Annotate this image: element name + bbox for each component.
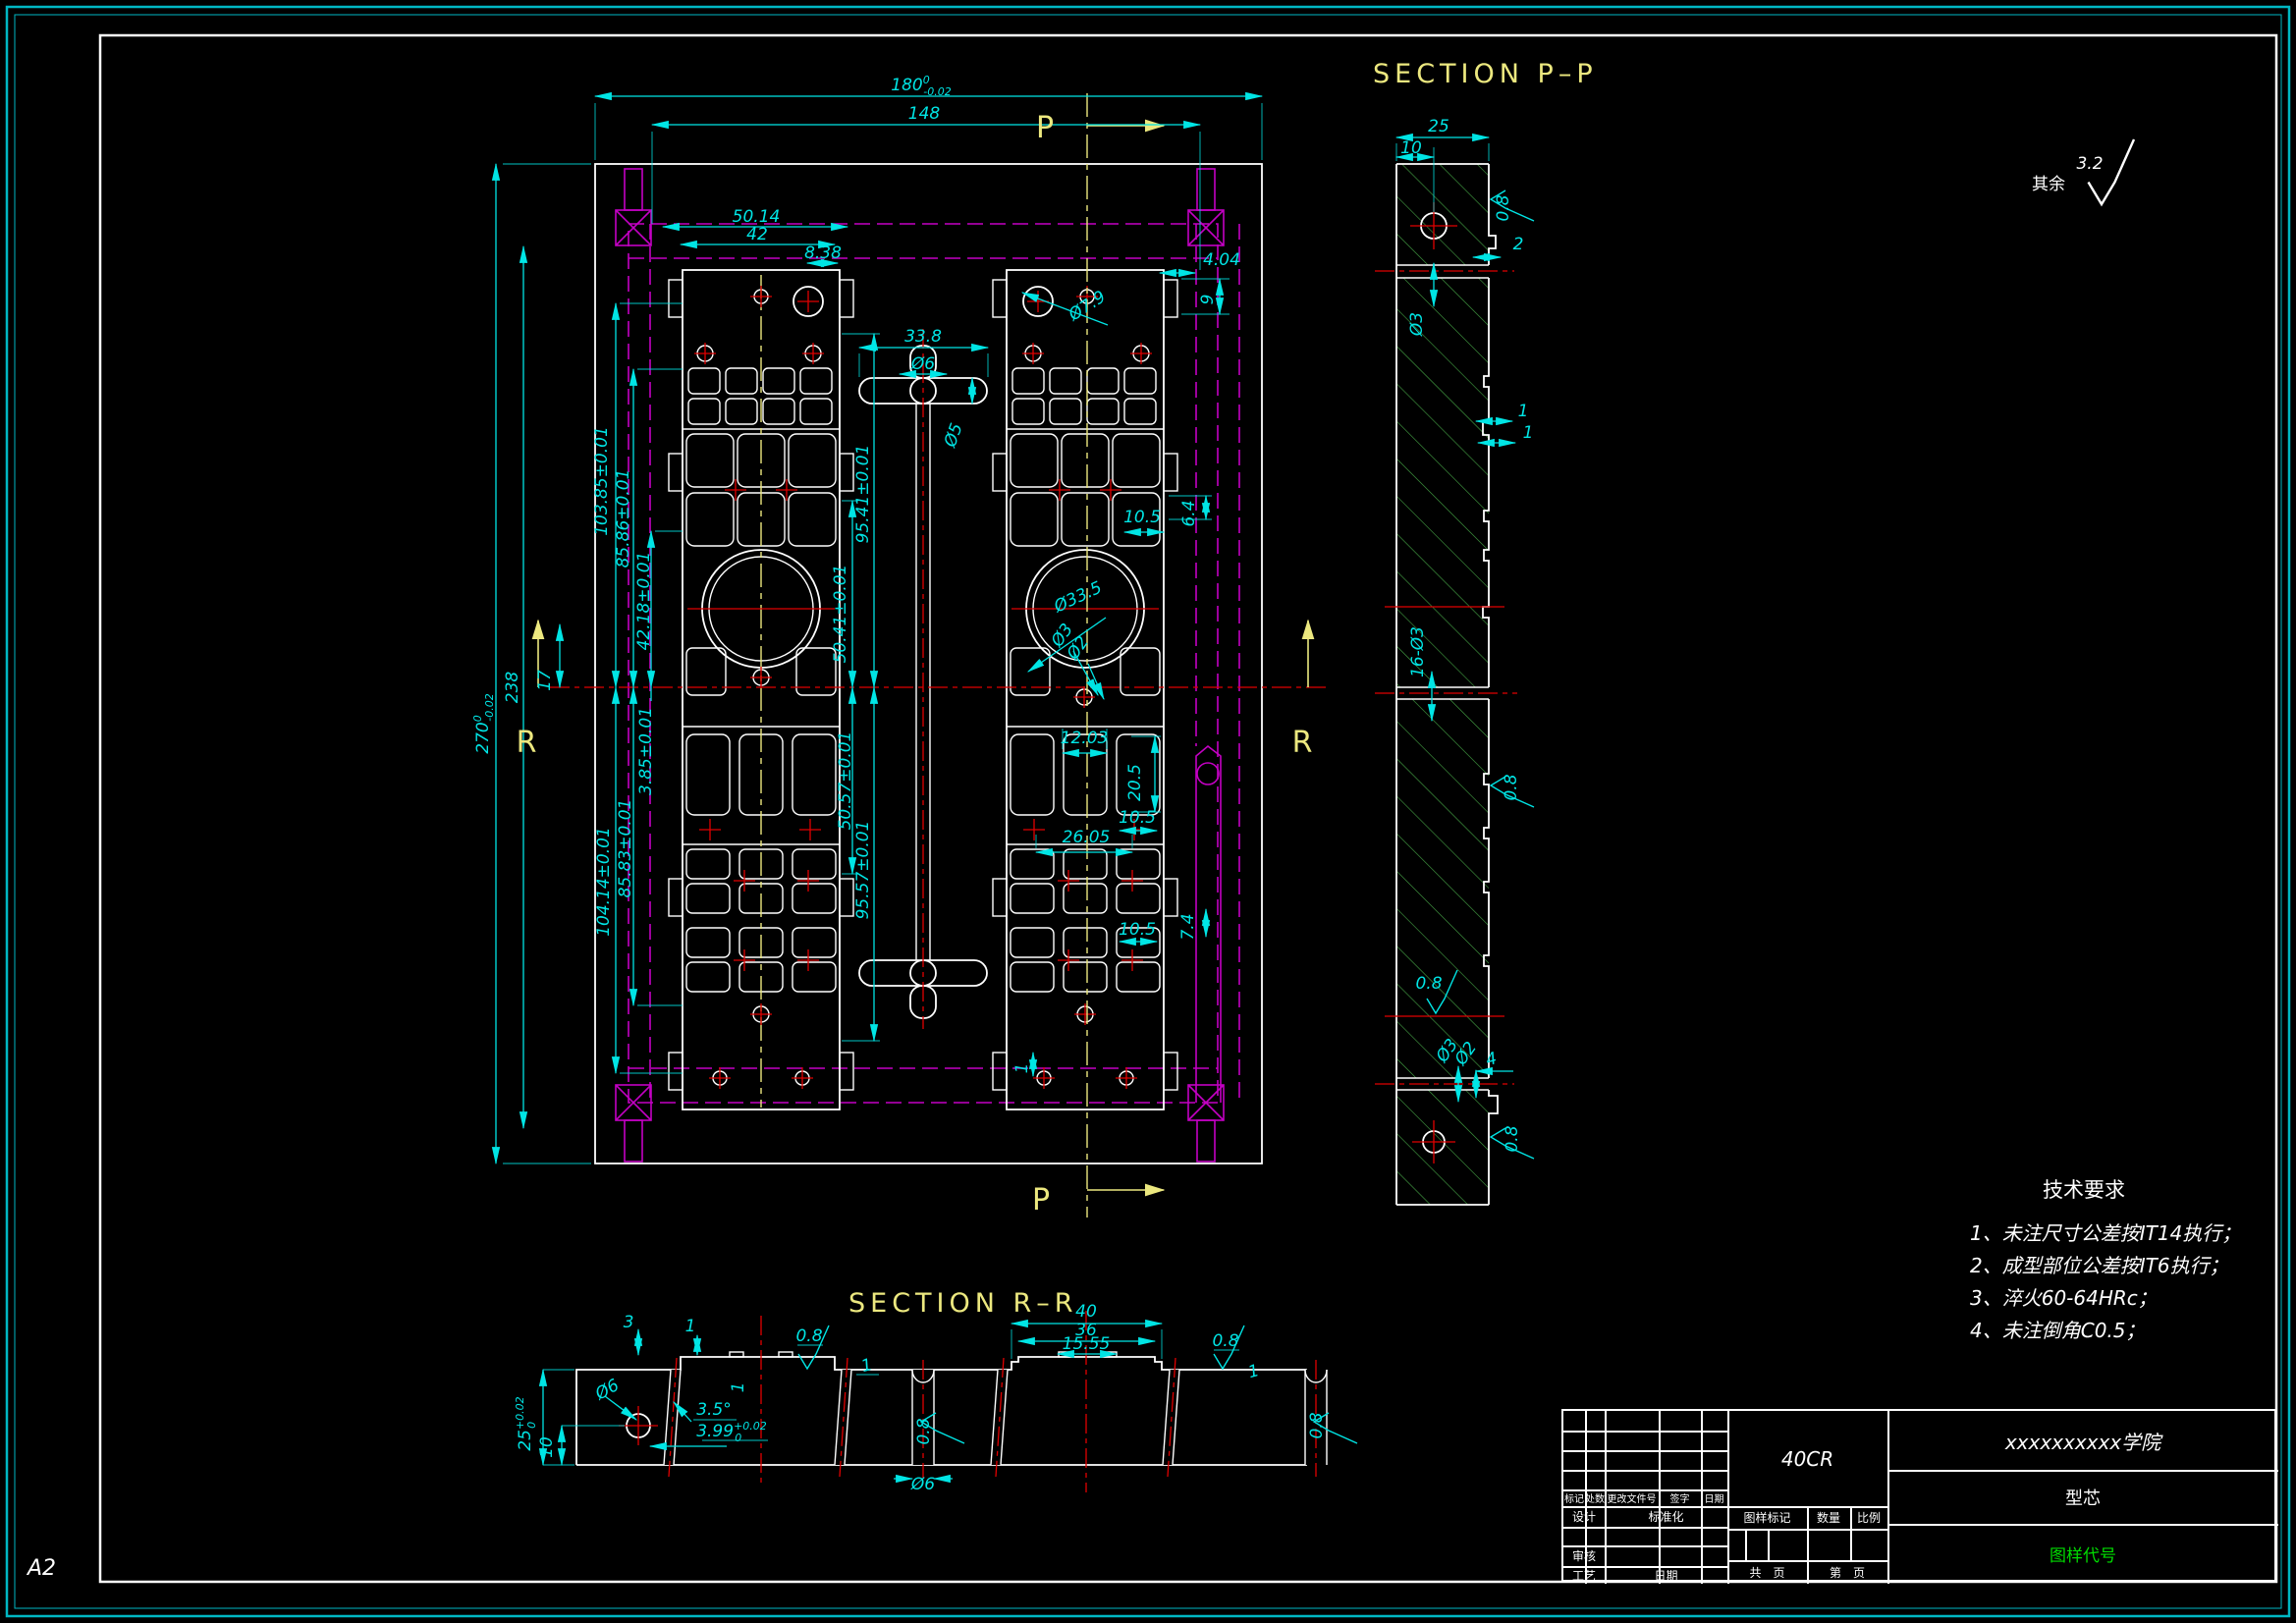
- dimension-label: 9: [1198, 295, 1218, 305]
- dimension-label: 15.55: [1063, 1334, 1111, 1354]
- page-number-label: 第 页: [1807, 1560, 1887, 1584]
- section-r-marker-left: R: [517, 726, 537, 760]
- company-field: xxxxxxxxxx学院: [1887, 1411, 2278, 1470]
- dimension-label: Ø6: [910, 354, 935, 374]
- annotations-layer: 1800-0.0214850.14428.384.04933.8Ø6Ø5Ø7.9…: [471, 59, 2104, 1494]
- dimension-label: 95.57±0.01: [853, 821, 873, 920]
- dimension-label: 10.5: [1119, 920, 1156, 940]
- drawing-mark-label: 图样标记: [1727, 1506, 1807, 1529]
- core-plate-left: [669, 270, 853, 1109]
- dimension-label: 0.8: [914, 1418, 934, 1444]
- dimension-label: 0.8: [1415, 974, 1442, 994]
- dimension-label: Ø33.5: [1051, 578, 1106, 618]
- tech-requirement-item: 1、未注尺寸公差按IT14执行；: [1956, 1217, 2296, 1250]
- dimension-label: 40: [1075, 1302, 1097, 1322]
- scale-label: 比例: [1850, 1506, 1887, 1529]
- section-pp-title: SECTION P–P: [1373, 59, 1598, 89]
- dimension-label: 16-Ø3: [1408, 626, 1428, 677]
- standardization-label: 标准化: [1605, 1506, 1727, 1527]
- dimension-label: 85.83±0.01: [616, 799, 635, 898]
- dimension-label: 0.8: [1503, 1125, 1522, 1152]
- dimension-label: 26.05: [1063, 828, 1111, 847]
- dimension-label: 1: [859, 1355, 875, 1377]
- dimension-label: Ø3: [1407, 312, 1427, 337]
- dimension-label: 104.14±0.01: [594, 827, 614, 937]
- dimension-label: 8.38: [804, 243, 842, 263]
- mold-base-hidden-lines: [616, 169, 1239, 1162]
- tech-requirements-title: 技术要求: [1956, 1174, 2296, 1204]
- audit-label: 审核: [1563, 1545, 1605, 1566]
- tech-requirement-item: 2、成型部位公差按IT6执行；: [1956, 1250, 2296, 1282]
- dimension-label: 42: [746, 225, 768, 244]
- design-label: 设计: [1563, 1506, 1605, 1527]
- revision-header: 日期: [1701, 1489, 1727, 1506]
- dimension-label: 0.8: [795, 1326, 822, 1346]
- dimension-label: 1: [1523, 423, 1534, 443]
- plan-centerlines: [550, 286, 1326, 1089]
- dimension-label: 0.8: [1212, 1331, 1238, 1351]
- title-block: 标记 处数 更改文件号 签字 日期 设计 标准化 审核 工艺 日期 40CR 图…: [1561, 1409, 2276, 1582]
- tech-requirement-item: 4、未注倒角C0.5；: [1956, 1315, 2296, 1347]
- dimension-label: 1800-0.02: [891, 74, 951, 98]
- dimension-label: 95.41±0.01: [853, 445, 873, 544]
- dimension-label: 10.5: [1123, 508, 1161, 527]
- dimension-label: 2: [1513, 235, 1524, 254]
- drawing-code-field: 图样代号: [1887, 1524, 2278, 1584]
- dimension-label: 12.03: [1061, 729, 1109, 748]
- dimension-label: 2700-0.02: [471, 693, 496, 753]
- dimension-label: 1: [1012, 1063, 1032, 1074]
- dimension-label: 3.85±0.01: [636, 707, 656, 795]
- dimension-label: 0.8: [1502, 774, 1521, 800]
- dimension-label: 20.5: [1125, 764, 1145, 801]
- core-plate-right: [993, 270, 1177, 1109]
- dimension-label: 3: [624, 1313, 634, 1332]
- revision-header: 签字: [1659, 1489, 1701, 1506]
- surface-note-prefix: 其余: [2032, 175, 2065, 194]
- dimension-label: 1: [1246, 1361, 1262, 1382]
- dimension-label: 103.85±0.01: [592, 426, 612, 536]
- process-label: 工艺: [1563, 1566, 1605, 1584]
- cad-viewport: 1800-0.0214850.14428.384.04933.8Ø6Ø5Ø7.9…: [0, 0, 2296, 1623]
- dimension-label: 10: [537, 1436, 557, 1458]
- dimension-label: Ø6: [591, 1376, 623, 1405]
- dimension-label: 7.4: [1178, 913, 1198, 940]
- dimension-label: 25+0.020: [514, 1396, 538, 1450]
- dimension-label: 0.8: [1307, 1412, 1327, 1438]
- dimension-label: 0.8: [1494, 194, 1513, 221]
- material-field: 40CR: [1727, 1411, 1887, 1506]
- dimension-label: 50.41±0.01: [831, 565, 850, 664]
- section-p-marker-top: P: [1036, 111, 1054, 145]
- quantity-label: 数量: [1807, 1506, 1850, 1529]
- plan-view: [496, 93, 1326, 1217]
- dimension-label: 10: [1400, 138, 1422, 158]
- dimension-label: 50.14: [733, 207, 781, 227]
- cad-canvas: 1800-0.0214850.14428.384.04933.8Ø6Ø5Ø7.9…: [0, 0, 2296, 1623]
- dimension-label: 50.57±0.01: [836, 731, 855, 831]
- dimension-label: Ø5: [940, 420, 966, 451]
- section-rr-title: SECTION R–R: [848, 1288, 1078, 1319]
- surface-note-value: 3.2: [2076, 154, 2103, 174]
- date-label: 日期: [1605, 1566, 1727, 1584]
- dimension-label: 1: [685, 1317, 696, 1336]
- section-p-marker-bottom: P: [1032, 1183, 1050, 1217]
- dimension-label: 33.8: [904, 327, 942, 347]
- dimension-label: 25: [1428, 117, 1449, 136]
- revision-header: 处数: [1585, 1489, 1605, 1506]
- dimension-label: 1: [1518, 402, 1529, 421]
- revision-header: 更改文件号: [1605, 1489, 1659, 1506]
- section-r-marker-right: R: [1292, 726, 1313, 760]
- dimension-label: 85.86±0.01: [614, 469, 633, 568]
- dimension-label: 148: [908, 104, 941, 124]
- plan-dimensions: [496, 96, 1262, 1163]
- dimension-label: Ø6: [910, 1475, 935, 1494]
- dimension-label: 1: [729, 1382, 748, 1393]
- dimension-label: 238: [503, 672, 522, 704]
- revision-header: 标记: [1563, 1489, 1585, 1506]
- dimension-label: 6.4: [1179, 500, 1199, 526]
- dimension-label: 4.04: [1203, 250, 1240, 270]
- dimension-label: 17: [535, 670, 555, 691]
- dimension-label: 3.5°: [696, 1400, 732, 1420]
- dimension-label: 10.5: [1119, 808, 1156, 828]
- tech-requirement-item: 3、淬火60-64HRc；: [1956, 1282, 2296, 1315]
- dimension-label: 42.18±0.01: [634, 552, 654, 651]
- sheet-size-label: A2: [27, 1556, 56, 1581]
- part-name-field: 型芯: [1887, 1470, 2278, 1524]
- rr-dimensions: [543, 1324, 1239, 1479]
- total-pages-label: 共 页: [1727, 1560, 1807, 1584]
- technical-requirements: 技术要求 1、未注尺寸公差按IT14执行； 2、成型部位公差按IT6执行； 3、…: [1956, 1174, 2296, 1347]
